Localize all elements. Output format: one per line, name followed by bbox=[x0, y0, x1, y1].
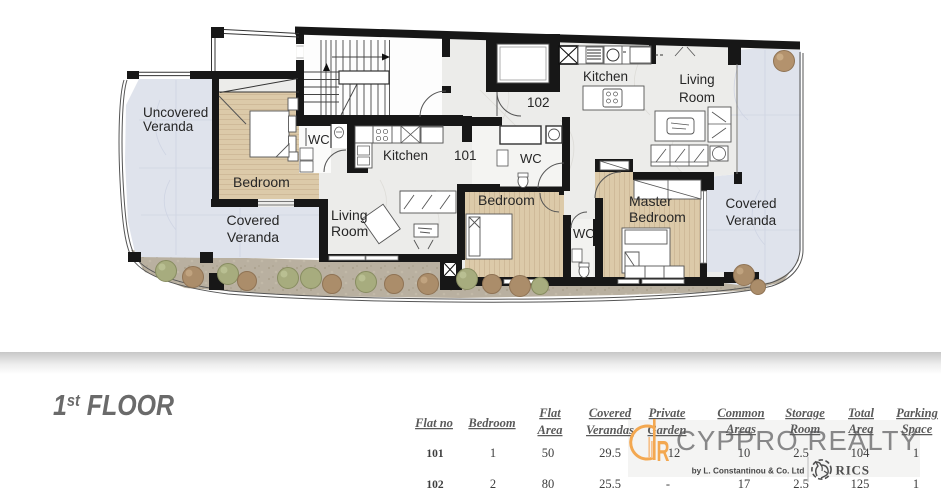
svg-text:101: 101 bbox=[426, 448, 444, 460]
svg-text:Covered: Covered bbox=[227, 212, 280, 228]
svg-text:2.5: 2.5 bbox=[793, 477, 809, 491]
svg-text:Verandas: Verandas bbox=[586, 423, 634, 437]
svg-text:Room: Room bbox=[679, 90, 715, 105]
svg-text:Covered: Covered bbox=[725, 196, 776, 211]
svg-text:1: 1 bbox=[913, 477, 919, 491]
svg-text:Total: Total bbox=[848, 406, 874, 420]
svg-text:Living: Living bbox=[679, 72, 714, 87]
svg-text:R: R bbox=[657, 436, 670, 468]
svg-text:Veranda: Veranda bbox=[227, 229, 279, 245]
svg-text:Uncovered: Uncovered bbox=[143, 105, 208, 120]
svg-text:17: 17 bbox=[738, 477, 751, 491]
svg-text:29.5: 29.5 bbox=[599, 446, 621, 460]
svg-text:Flat no: Flat no bbox=[414, 416, 453, 430]
svg-text:125: 125 bbox=[851, 477, 870, 491]
svg-text:101: 101 bbox=[454, 148, 477, 163]
svg-text:by L. Constantinou & Co. Ltd: by L. Constantinou & Co. Ltd bbox=[692, 467, 805, 476]
svg-text:WC: WC bbox=[308, 132, 330, 147]
svg-text:Veranda: Veranda bbox=[143, 119, 194, 134]
svg-text:Area: Area bbox=[537, 423, 563, 437]
svg-text:Covered: Covered bbox=[589, 406, 632, 420]
svg-text:CYPPRO REALTY: CYPPRO REALTY bbox=[676, 425, 918, 456]
svg-text:Room: Room bbox=[331, 223, 368, 239]
svg-text:1: 1 bbox=[490, 446, 496, 460]
svg-text:102: 102 bbox=[527, 95, 550, 110]
svg-text:Master: Master bbox=[629, 193, 672, 209]
svg-text:102: 102 bbox=[426, 479, 444, 491]
svg-text:Veranda: Veranda bbox=[726, 213, 777, 228]
svg-text:Bedroom: Bedroom bbox=[478, 192, 535, 208]
svg-text:2: 2 bbox=[490, 477, 496, 491]
svg-text:Bedroom: Bedroom bbox=[629, 209, 686, 225]
svg-text:Living: Living bbox=[331, 207, 368, 223]
svg-text:Bedroom: Bedroom bbox=[233, 174, 290, 190]
svg-text:Kitchen: Kitchen bbox=[583, 69, 628, 84]
svg-text:Common: Common bbox=[717, 406, 764, 420]
svg-text:-: - bbox=[666, 477, 670, 491]
svg-text:25.5: 25.5 bbox=[599, 477, 621, 491]
svg-text:Flat: Flat bbox=[538, 406, 561, 420]
svg-text:Private: Private bbox=[649, 406, 686, 420]
svg-text:WC: WC bbox=[573, 226, 595, 241]
svg-text:Bedroom: Bedroom bbox=[467, 416, 516, 430]
svg-text:WC: WC bbox=[520, 151, 542, 166]
svg-text:Kitchen: Kitchen bbox=[383, 148, 428, 163]
svg-text:80: 80 bbox=[542, 477, 555, 491]
svg-text:50: 50 bbox=[542, 446, 555, 460]
svg-text:RICS: RICS bbox=[836, 463, 870, 478]
svg-text:Parking: Parking bbox=[896, 406, 938, 420]
svg-text:Storage: Storage bbox=[785, 406, 825, 420]
